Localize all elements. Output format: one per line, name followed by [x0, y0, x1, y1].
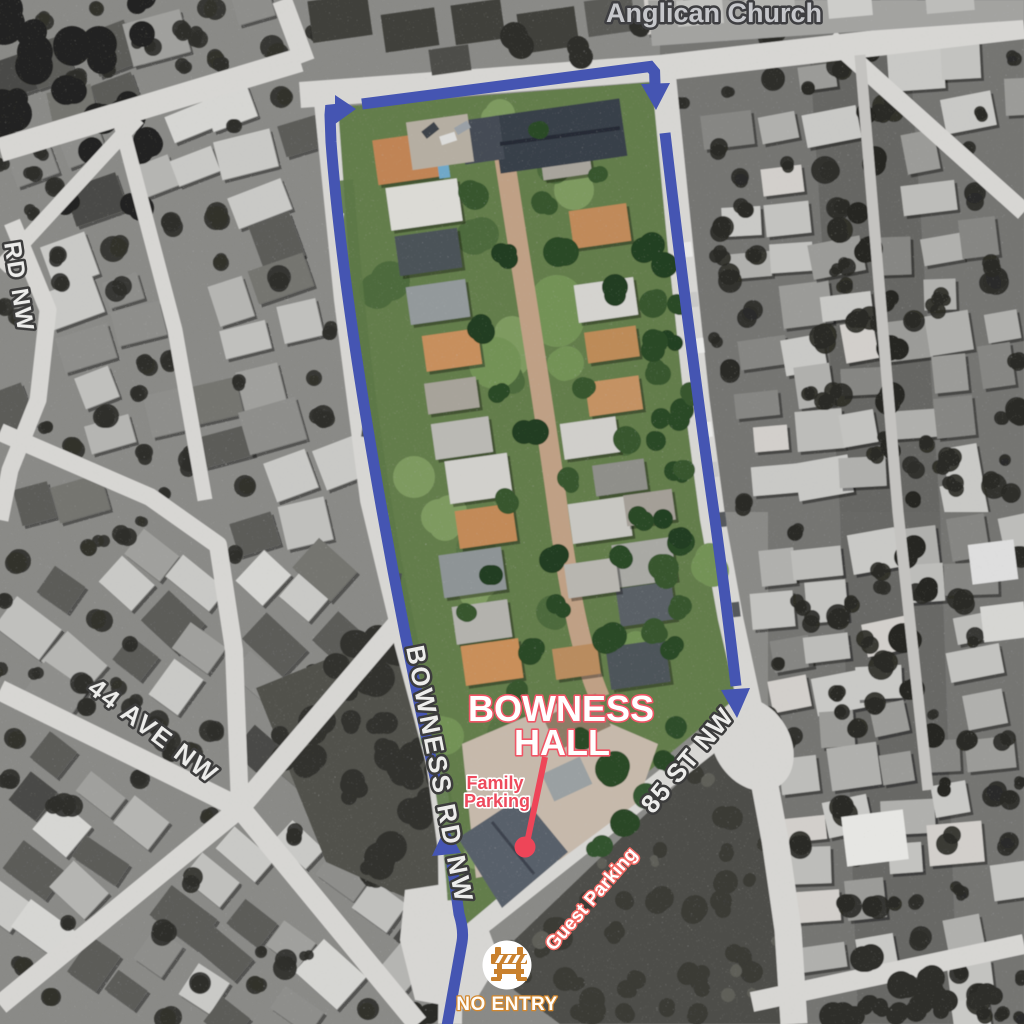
svg-text:Parking: Parking: [464, 791, 530, 811]
svg-text:NO ENTRY: NO ENTRY: [456, 994, 557, 1015]
svg-text:HALL: HALL: [514, 722, 610, 763]
svg-text:Family: Family: [466, 773, 523, 793]
svg-text:Anglican Church: Anglican Church: [606, 0, 822, 28]
